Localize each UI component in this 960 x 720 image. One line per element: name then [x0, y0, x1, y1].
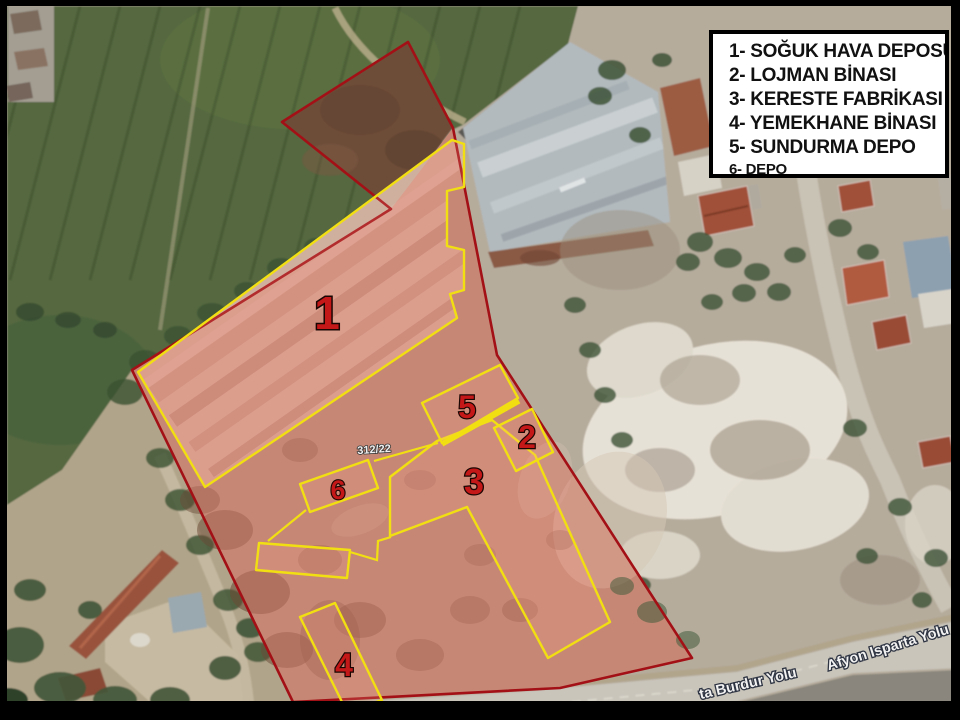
building-1-label: 1 — [314, 287, 340, 339]
building-4-label: 4 — [335, 647, 353, 683]
corner-buildings — [6, 6, 54, 102]
legend-item-2: 2- LOJMAN BİNASI — [729, 64, 943, 88]
legend-item-3: 3- KERESTE FABRİKASI — [729, 88, 943, 112]
building-2-label: 2 — [518, 419, 536, 455]
parcel-number-label: 312/22 — [357, 443, 391, 457]
legend-box: 1- SOĞUK HAVA DEPOSU 2- LOJMAN BİNASI 3-… — [709, 30, 949, 178]
building-5-label: 5 — [458, 389, 476, 425]
legend-item-5: 5- SUNDURMA DEPO — [729, 136, 943, 160]
building-3-label: 3 — [464, 461, 484, 502]
legend-item-6: 6- DEPO — [729, 160, 943, 178]
building-6-label: 6 — [330, 475, 345, 505]
annotated-satellite-figure: 1 2 3 4 5 6 312/22 ta Burdur Yolu Afyon … — [0, 0, 960, 720]
legend-item-1: 1- SOĞUK HAVA DEPOSU — [729, 40, 943, 64]
legend-item-4: 4- YEMEKHANE BİNASI — [729, 112, 943, 136]
